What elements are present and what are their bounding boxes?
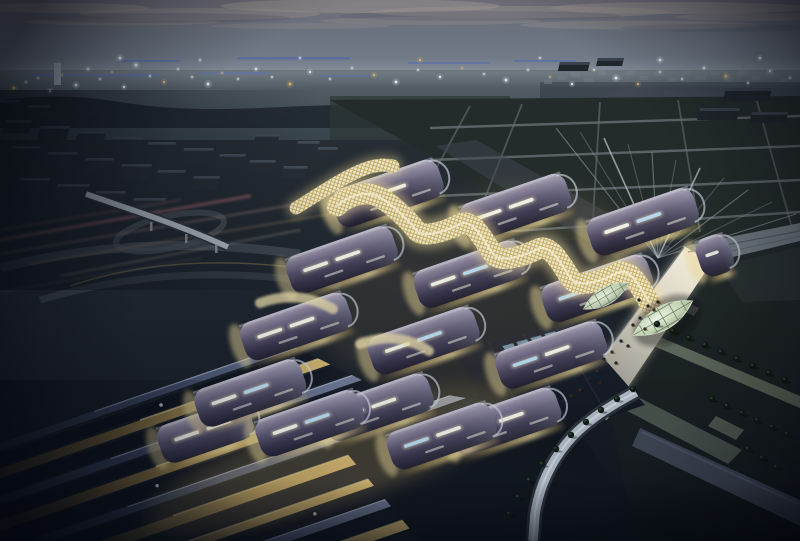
screenshot-root [0, 0, 800, 541]
scene-svg [0, 0, 800, 541]
vignette [0, 0, 800, 541]
